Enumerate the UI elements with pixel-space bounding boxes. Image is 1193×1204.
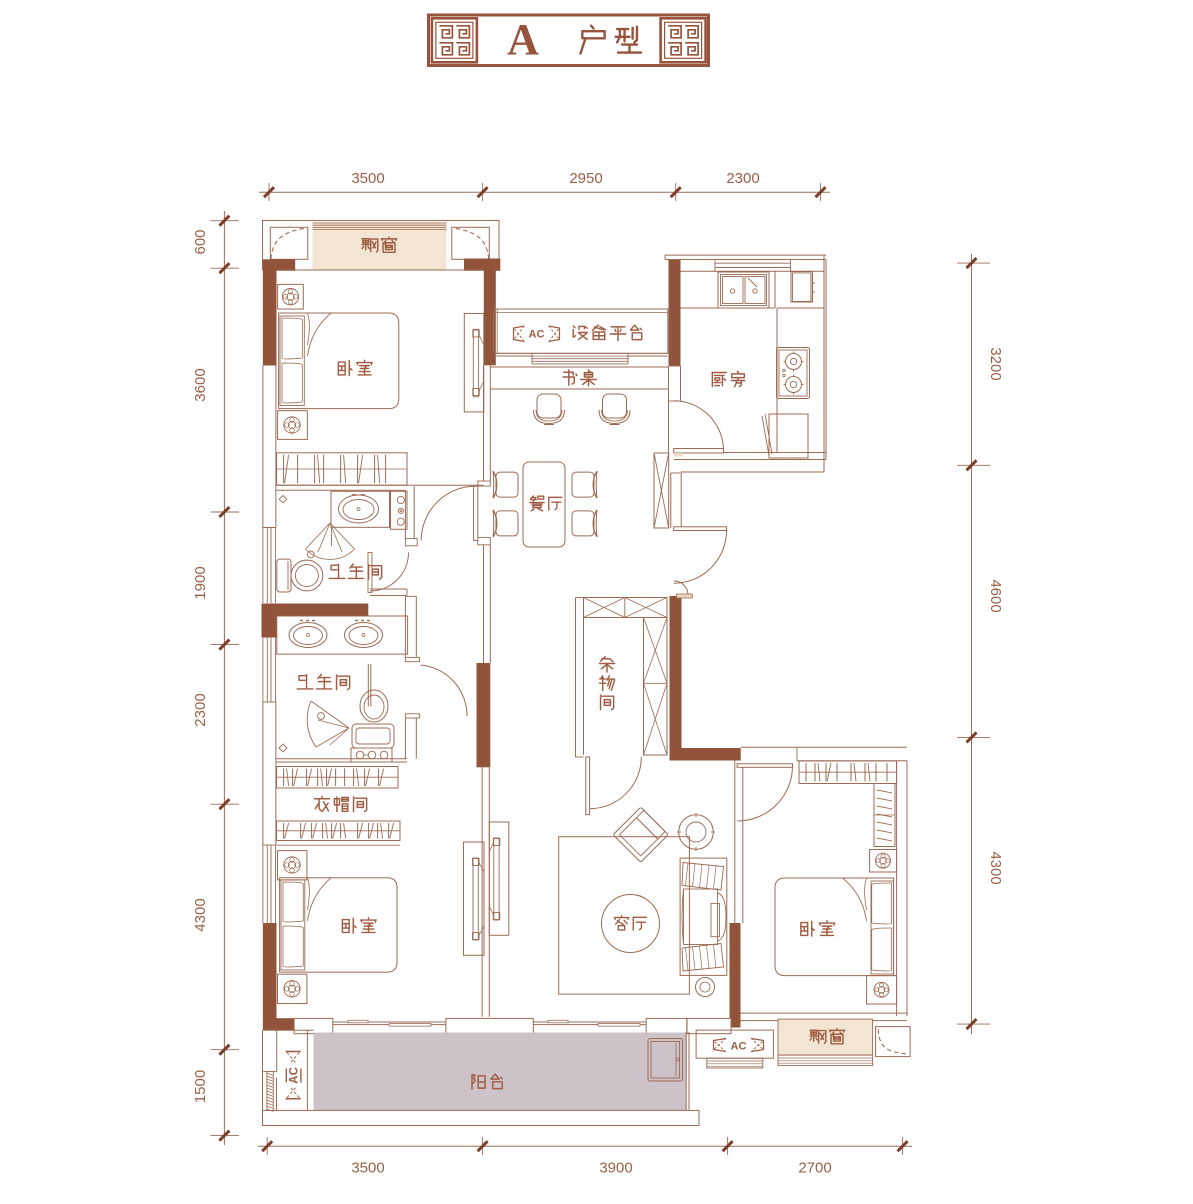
svg-text:2300: 2300	[192, 693, 209, 726]
svg-text:3600: 3600	[192, 368, 209, 401]
svg-text:4300: 4300	[192, 898, 209, 931]
svg-text:2950: 2950	[569, 170, 602, 187]
svg-text:AC: AC	[529, 329, 545, 341]
svg-text:1500: 1500	[192, 1070, 209, 1103]
svg-text:AC: AC	[731, 1041, 747, 1053]
svg-text:3900: 3900	[599, 1160, 632, 1177]
svg-text:2300: 2300	[726, 170, 759, 187]
svg-text:2700: 2700	[798, 1160, 831, 1177]
svg-text:3500: 3500	[351, 170, 384, 187]
svg-text:A: A	[507, 15, 539, 64]
svg-text:3500: 3500	[351, 1160, 384, 1177]
svg-text:3200: 3200	[987, 347, 1004, 380]
svg-text:4600: 4600	[987, 579, 1004, 612]
svg-text:4300: 4300	[987, 851, 1004, 884]
svg-text:600: 600	[192, 229, 209, 254]
svg-text:AC: AC	[289, 1067, 301, 1084]
svg-text:1900: 1900	[192, 566, 209, 599]
